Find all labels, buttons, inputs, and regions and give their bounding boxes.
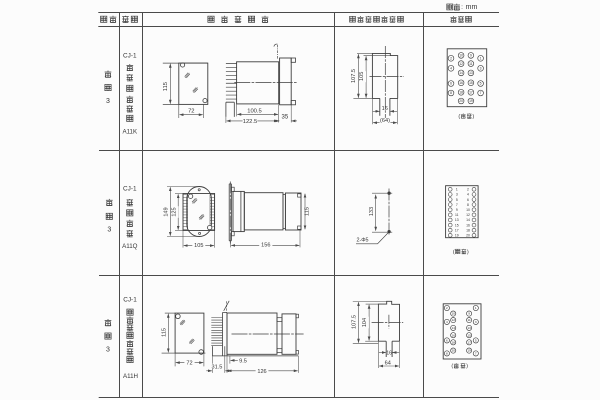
svg-text:122.5: 122.5	[243, 119, 258, 125]
svg-text:1: 1	[480, 57, 482, 61]
svg-text:CJ-1: CJ-1	[123, 186, 137, 193]
svg-text:12: 12	[466, 213, 470, 217]
svg-text:3: 3	[475, 320, 477, 324]
svg-text:9.5: 9.5	[239, 358, 247, 364]
svg-text:107.5: 107.5	[351, 315, 357, 329]
svg-text:10: 10	[459, 54, 463, 58]
svg-text:A11Q: A11Q	[122, 243, 138, 250]
svg-text:15: 15	[455, 223, 459, 227]
svg-text:13: 13	[467, 326, 471, 330]
svg-text:16: 16	[386, 350, 392, 356]
svg-text:18: 18	[459, 91, 463, 95]
svg-text:125: 125	[172, 207, 178, 216]
svg-text:11: 11	[469, 62, 473, 66]
svg-text:2-Φ5: 2-Φ5	[356, 238, 368, 244]
svg-text:100.5: 100.5	[247, 109, 262, 115]
svg-text:6: 6	[450, 82, 452, 86]
svg-text:10: 10	[451, 312, 455, 316]
svg-text:133: 133	[369, 207, 375, 216]
svg-text:17: 17	[469, 91, 473, 95]
svg-text:7: 7	[456, 203, 458, 207]
svg-text:mm: mm	[466, 4, 478, 11]
svg-text:15: 15	[467, 333, 471, 337]
svg-text:8: 8	[450, 91, 452, 95]
svg-text:10: 10	[466, 208, 470, 212]
svg-text:9: 9	[456, 208, 458, 212]
svg-text:105: 105	[194, 243, 203, 249]
svg-text:5: 5	[480, 82, 482, 86]
svg-text:3: 3	[106, 347, 110, 354]
svg-text:CJ-1: CJ-1	[123, 53, 137, 60]
svg-text:4: 4	[446, 320, 448, 324]
svg-text:20: 20	[459, 99, 463, 103]
svg-text:): )	[467, 249, 469, 255]
svg-text:11: 11	[467, 318, 470, 322]
svg-text:72: 72	[188, 109, 194, 115]
svg-text:6: 6	[446, 339, 448, 343]
svg-text:17: 17	[455, 228, 459, 232]
svg-text:4: 4	[450, 67, 452, 71]
svg-text:3: 3	[107, 227, 111, 234]
svg-text:19: 19	[455, 234, 459, 238]
svg-text:13: 13	[455, 218, 459, 222]
svg-text:115: 115	[163, 82, 169, 91]
svg-text:7: 7	[475, 352, 477, 356]
svg-text:2: 2	[450, 57, 452, 61]
svg-text:126: 126	[257, 369, 266, 375]
svg-text:16: 16	[459, 81, 463, 85]
svg-text:107.5: 107.5	[351, 69, 357, 83]
svg-text:9: 9	[468, 312, 470, 316]
svg-text:(64): (64)	[380, 118, 390, 124]
svg-text:1: 1	[456, 188, 458, 192]
svg-text:): )	[466, 364, 468, 370]
svg-text:8: 8	[467, 203, 469, 207]
svg-text:2: 2	[467, 188, 469, 192]
svg-text:12: 12	[459, 62, 463, 66]
svg-text:4: 4	[467, 193, 469, 197]
svg-text:15: 15	[469, 81, 473, 85]
svg-text:A11K: A11K	[122, 128, 138, 135]
svg-text:11: 11	[455, 213, 459, 217]
svg-text:5: 5	[475, 339, 477, 343]
svg-text:3: 3	[106, 98, 110, 105]
svg-text:14: 14	[451, 326, 455, 330]
svg-text:72: 72	[186, 361, 192, 367]
svg-text:115: 115	[304, 207, 310, 216]
svg-text:8: 8	[446, 352, 448, 356]
svg-text:20: 20	[451, 349, 455, 353]
svg-text:31.5: 31.5	[211, 365, 222, 371]
svg-text:12: 12	[451, 318, 455, 322]
svg-text:149: 149	[164, 207, 170, 216]
svg-text:13: 13	[469, 71, 473, 75]
svg-text:6: 6	[467, 198, 469, 202]
svg-text:18: 18	[466, 228, 470, 232]
svg-text:19: 19	[469, 99, 473, 103]
svg-text:(: (	[451, 364, 453, 370]
svg-text:19: 19	[467, 349, 471, 353]
svg-text:64: 64	[385, 360, 391, 366]
svg-text:20: 20	[466, 234, 470, 238]
svg-text:3: 3	[456, 193, 458, 197]
svg-text:16: 16	[382, 106, 388, 112]
svg-text:7: 7	[480, 91, 482, 95]
svg-text:115: 115	[162, 328, 168, 337]
svg-text:3: 3	[480, 67, 482, 71]
svg-text:16: 16	[451, 333, 455, 337]
svg-text::: :	[461, 4, 463, 11]
svg-text:A11H: A11H	[123, 373, 138, 380]
svg-text:(: (	[458, 114, 460, 120]
svg-text:105: 105	[359, 72, 365, 81]
svg-text:CJ-1: CJ-1	[123, 297, 137, 304]
svg-text:156: 156	[261, 243, 270, 249]
svg-text:18: 18	[451, 340, 455, 344]
svg-text:5: 5	[456, 198, 458, 202]
svg-text:(: (	[453, 249, 455, 255]
svg-text:17: 17	[467, 340, 471, 344]
svg-text:1: 1	[475, 306, 477, 310]
svg-text:14: 14	[466, 218, 470, 222]
svg-text:9: 9	[470, 54, 472, 58]
svg-text:104: 104	[362, 318, 368, 327]
svg-text:): )	[472, 114, 474, 120]
svg-text:16: 16	[466, 223, 470, 227]
svg-text:2: 2	[446, 306, 448, 310]
svg-text:14: 14	[459, 71, 463, 75]
svg-text:35: 35	[282, 114, 289, 120]
